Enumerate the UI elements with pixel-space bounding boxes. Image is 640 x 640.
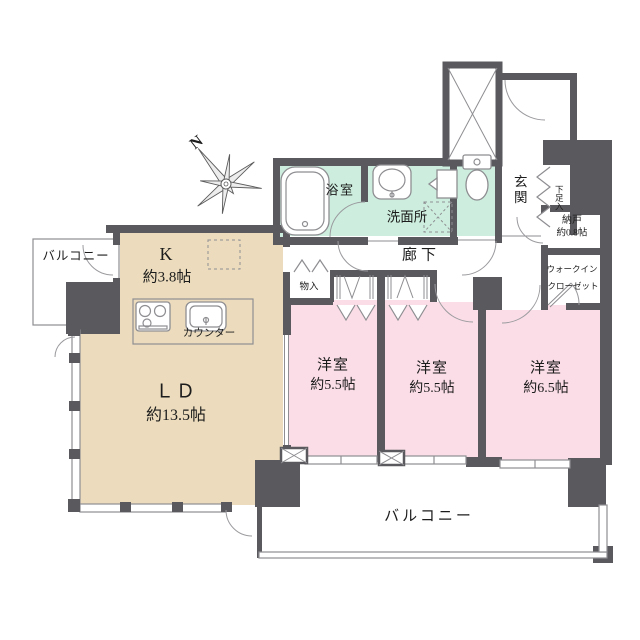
balcony-left-label: バルコニー [42,250,109,263]
washbasin-icon [373,165,411,199]
ld-name-label: ＬＤ [155,383,197,402]
balcony-bottom-label: バルコニー [384,510,474,525]
shoebox-label: 下足入 [555,185,564,211]
compass-icon [170,126,271,228]
bath-label: 浴室 [325,184,354,197]
wic-floor [546,255,600,303]
ld-size-label: 約13.5帖 [146,408,206,424]
floor-plan-drawing [0,0,640,640]
hatch-box-2 [379,451,404,465]
stove-icon [136,302,170,331]
floor-plan: N バルコニー K 約3.8帖 浴室 洗面所 廊下 玄関 下足入 納戸 約0.8… [0,0,640,640]
bedroom2-closet [385,273,430,300]
bedroom1-name-label: 洋室 [317,359,349,374]
bedroom3-size-label: 約6.5帖 [523,382,569,396]
bedroom2-doorway [437,277,473,302]
wic-label-line2: クローゼット [547,282,598,291]
kitchen-name-label: K [160,245,173,263]
kitchen-sink-icon [186,302,226,331]
bathtub-icon [281,167,329,235]
wic-label-line1: ウォークイン [546,265,597,274]
kitchen-size-label: 約3.8帖 [143,271,192,286]
bedroom2-size-label: 約5.5帖 [409,382,455,396]
hatch-box-1 [281,448,307,463]
entrance-label: 玄関 [512,175,526,206]
washroom-label: 洗面所 [387,210,428,224]
corridor-label: 廊下 [402,249,440,264]
closet-small-label: 物入 [299,283,318,293]
toilet-icon [463,155,491,200]
bedroom2-floor [385,300,478,458]
pipe-shaft [446,65,499,163]
bedroom2-name-label: 洋室 [416,362,448,377]
storage-size-label: 約0.8帖 [557,229,588,239]
counter-label: カウンター [183,329,236,340]
bedroom1-size-label: 約5.5帖 [310,379,356,393]
bedroom3-name-label: 洋室 [530,362,562,377]
storage-name-label: 納戸 [562,216,582,226]
